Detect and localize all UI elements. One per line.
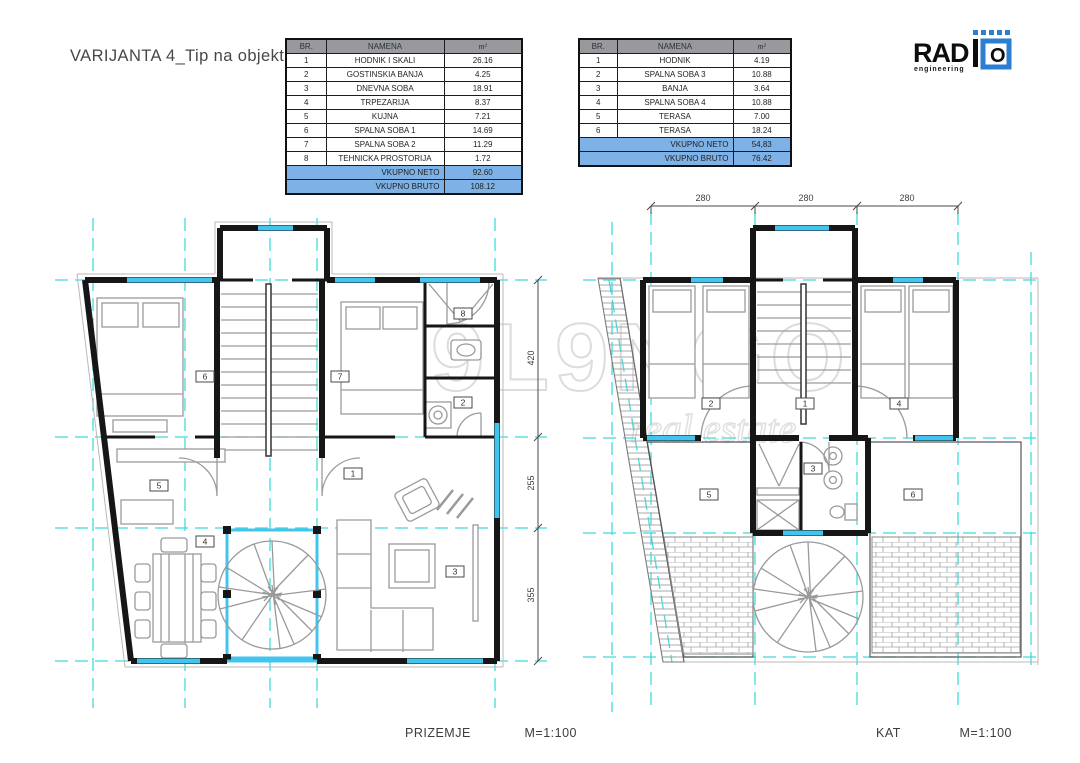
cell-br: 2	[286, 68, 326, 82]
cell-br: 8	[286, 152, 326, 166]
cell-br: 5	[286, 110, 326, 124]
total-label: VKUPNO BRUTO	[286, 180, 444, 195]
cell-br: 7	[286, 138, 326, 152]
table-row: 2GOSTINSKIA BANJA4.25	[286, 68, 522, 82]
cell-m2: 10.88	[733, 96, 791, 110]
table-row: 8TEHNICKA PROSTORIJA1.72	[286, 152, 522, 166]
table-row: 3DNEVNA SOBA18.91	[286, 82, 522, 96]
caption-kat-scale: M=1:100	[960, 726, 1013, 740]
table-row: 1HODNIK4.19	[579, 54, 791, 68]
door-arcs	[179, 282, 489, 496]
room-labels: 2 1 4 5 3 6	[700, 398, 922, 500]
total-value: 92.60	[444, 166, 522, 180]
cell-namena: SPALNA SOBA 1	[326, 124, 444, 138]
dining-set	[135, 538, 216, 658]
cell-br: 6	[286, 124, 326, 138]
svg-text:420: 420	[526, 350, 536, 365]
col-header-namena: NAMENA	[326, 39, 444, 54]
total-value: 76.42	[733, 152, 791, 167]
col-header-br: BR.	[286, 39, 326, 54]
col-header-m2: m²	[733, 39, 791, 54]
cell-br: 4	[286, 96, 326, 110]
svg-text:4: 4	[897, 399, 902, 409]
cell-m2: 3.64	[733, 82, 791, 96]
svg-text:7: 7	[338, 372, 343, 382]
cell-br: 5	[579, 110, 617, 124]
table-row: 4SPALNA SOBA 410.88	[579, 96, 791, 110]
cell-m2: 14.69	[444, 124, 522, 138]
cell-namena: KUJNA	[326, 110, 444, 124]
cell-m2: 10.88	[733, 68, 791, 82]
bed-room6	[97, 298, 183, 432]
caption-kat-label: KAT	[876, 726, 901, 740]
cell-m2: 26.16	[444, 54, 522, 68]
cell-namena: SPALNA SOBA 4	[617, 96, 733, 110]
cell-namena: BANJA	[617, 82, 733, 96]
total-value: 108.12	[444, 180, 522, 195]
cell-m2: 8.37	[444, 96, 522, 110]
table-row: 6TERASA18.24	[579, 124, 791, 138]
svg-text:5: 5	[157, 481, 162, 491]
terrace-6	[870, 442, 1021, 657]
cell-namena: TEHNICKA PROSTORIJA	[326, 152, 444, 166]
floor-plan-kat: 2 1 4 5 3 6 280 280 280	[583, 192, 1043, 717]
svg-text:3: 3	[811, 464, 816, 474]
dimension-line-top: 280 280 280	[647, 193, 962, 214]
caption-prizemje: PRIZEMJE M=1:100	[405, 726, 577, 740]
total-row: VKUPNO NETO54,83	[579, 138, 791, 152]
cell-namena: SPALNA SOBA 2	[326, 138, 444, 152]
cell-br: 3	[286, 82, 326, 96]
cell-m2: 11.29	[444, 138, 522, 152]
svg-text:6: 6	[911, 490, 916, 500]
logo-tagline: engineering	[914, 66, 965, 73]
table-row: 6SPALNA SOBA 114.69	[286, 124, 522, 138]
drawing-title: VARIJANTA 4_Tip na objekt E	[70, 47, 301, 66]
svg-text:5: 5	[707, 490, 712, 500]
cell-namena: TERASA	[617, 124, 733, 138]
coffee-table	[389, 544, 435, 588]
total-label: VKUPNO BRUTO	[579, 152, 733, 167]
cell-br: 3	[579, 82, 617, 96]
logo-o-letter: O	[990, 45, 1006, 67]
cell-m2: 7.00	[733, 110, 791, 124]
cell-m2: 4.25	[444, 68, 522, 82]
svg-text:355: 355	[526, 587, 536, 602]
svg-text:255: 255	[526, 475, 536, 490]
area-table-kat: BR. NAMENA m² 1HODNIK4.192SPALNA SOBA 31…	[578, 38, 792, 167]
table-row: 5KUJNA7.21	[286, 110, 522, 124]
cell-m2: 18.24	[733, 124, 791, 138]
table-row: 3BANJA3.64	[579, 82, 791, 96]
logo-text: RAD	[913, 38, 969, 68]
cell-m2: 1.72	[444, 152, 522, 166]
cell-namena: TERASA	[617, 110, 733, 124]
caption-prizemje-scale: M=1:100	[525, 726, 578, 740]
area-table-prizemje: BR. NAMENA m² 1HODNIK I SKALI26.162GOSTI…	[285, 38, 523, 195]
svg-text:1: 1	[803, 399, 808, 409]
dimension-line-vertical: 420 255 355	[526, 276, 542, 665]
total-label: VKUPNO NETO	[286, 166, 444, 180]
cell-br: 1	[579, 54, 617, 68]
cell-br: 1	[286, 54, 326, 68]
svg-text:3: 3	[453, 567, 458, 577]
cell-namena: HODNIK	[617, 54, 733, 68]
shaft	[757, 444, 799, 530]
svg-text:4: 4	[203, 537, 208, 547]
rug-lines	[437, 490, 473, 518]
logo-i-bar-icon	[973, 39, 978, 67]
beds-room4	[861, 286, 953, 398]
col-header-namena: NAMENA	[617, 39, 733, 54]
total-row: VKUPNO BRUTO108.12	[286, 180, 522, 195]
cell-br: 4	[579, 96, 617, 110]
armchair	[394, 477, 441, 522]
cell-namena: DNEVNA SOBA	[326, 82, 444, 96]
cell-m2: 7.21	[444, 110, 522, 124]
total-row: VKUPNO NETO92.60	[286, 166, 522, 180]
total-row: VKUPNO BRUTO76.42	[579, 152, 791, 167]
table-row: 4TRPEZARIJA8.37	[286, 96, 522, 110]
table-row: 2SPALNA SOBA 310.88	[579, 68, 791, 82]
bed-room7	[341, 302, 423, 414]
svg-text:2: 2	[461, 398, 466, 408]
logo: RAD O engineering	[913, 28, 1023, 86]
floor-plan-prizemje: 6 7 8 2 5 4 1 3 420 255 355	[55, 218, 555, 718]
cell-br: 2	[579, 68, 617, 82]
svg-text:280: 280	[899, 193, 914, 203]
svg-text:2: 2	[709, 399, 714, 409]
table-header-row: BR. NAMENA m²	[579, 39, 791, 54]
tv-unit	[473, 525, 478, 621]
col-header-br: BR.	[579, 39, 617, 54]
tree	[218, 541, 326, 649]
cell-m2: 18.91	[444, 82, 522, 96]
cell-namena: SPALNA SOBA 3	[617, 68, 733, 82]
cell-namena: TRPEZARIJA	[326, 96, 444, 110]
table-row: 5TERASA7.00	[579, 110, 791, 124]
logo-dotted-squares-icon	[973, 30, 1010, 35]
total-label: VKUPNO NETO	[579, 138, 733, 152]
table-row: 7SPALNA SOBA 211.29	[286, 138, 522, 152]
col-header-m2: m²	[444, 39, 522, 54]
cell-m2: 4.19	[733, 54, 791, 68]
tree	[753, 542, 863, 652]
caption-prizemje-label: PRIZEMJE	[405, 726, 471, 740]
drawing-sheet: VARIJANTA 4_Tip na objekt E BR. NAMENA m…	[0, 0, 1080, 763]
caption-kat: KAT M=1:100	[876, 726, 1012, 740]
cell-namena: HODNIK I SKALI	[326, 54, 444, 68]
svg-text:6: 6	[203, 372, 208, 382]
total-value: 54,83	[733, 138, 791, 152]
cell-namena: GOSTINSKIA BANJA	[326, 68, 444, 82]
svg-text:1: 1	[351, 469, 356, 479]
stairs	[221, 284, 318, 456]
svg-text:280: 280	[798, 193, 813, 203]
beds-room2	[649, 286, 749, 398]
svg-text:280: 280	[695, 193, 710, 203]
cell-br: 6	[579, 124, 617, 138]
table-row: 1HODNIK I SKALI26.16	[286, 54, 522, 68]
table-header-row: BR. NAMENA m²	[286, 39, 522, 54]
stair-rail	[266, 284, 271, 456]
kitchen-counters	[117, 449, 225, 524]
svg-text:8: 8	[461, 309, 466, 319]
